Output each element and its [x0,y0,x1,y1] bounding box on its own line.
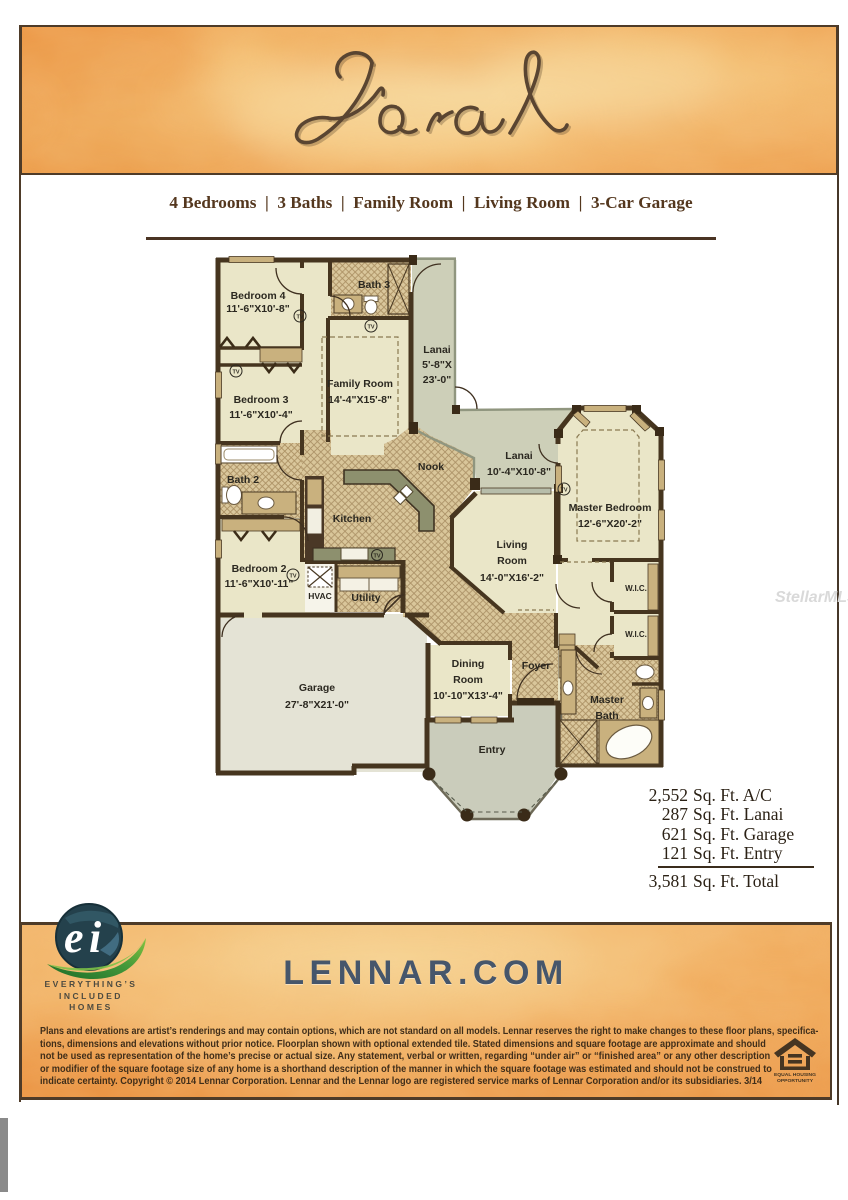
svg-text:TV: TV [296,315,303,321]
svg-text:W.I.C.: W.I.C. [625,584,647,593]
svg-text:Kitchen: Kitchen [333,513,372,525]
svg-text:Master Bedroom: Master Bedroom [569,502,652,514]
svg-text:14'-4"X15'-8": 14'-4"X15'-8" [328,394,392,406]
svg-text:TV: TV [232,370,239,376]
svg-text:10'-4"X10'-8": 10'-4"X10'-8" [487,466,551,478]
svg-text:Bath: Bath [595,710,618,722]
svg-text:Nook: Nook [418,461,444,473]
svg-text:TV: TV [289,574,296,580]
svg-text:Utility: Utility [351,592,380,604]
svg-text:Bedroom 3: Bedroom 3 [234,394,289,406]
svg-text:10'-10"X13'-4": 10'-10"X13'-4" [433,690,503,702]
svg-text:Room: Room [497,555,527,567]
svg-text:Master: Master [590,694,624,706]
svg-text:11'-6"X10'-8": 11'-6"X10'-8" [226,303,289,315]
svg-text:Dining: Dining [452,658,485,670]
svg-text:EQUAL HOUSING: EQUAL HOUSING [774,1072,816,1078]
svg-text:11'-6"X10'-4": 11'-6"X10'-4" [229,409,292,421]
svg-text:Bedroom 4: Bedroom 4 [231,290,286,302]
svg-text:OPPORTUNITY: OPPORTUNITY [777,1078,814,1084]
svg-text:23'-0": 23'-0" [423,374,452,386]
svg-text:11'-6"X10'-11": 11'-6"X10'-11" [225,578,294,590]
svg-text:TV: TV [373,554,380,560]
svg-text:Bath 3: Bath 3 [358,279,390,291]
svg-text:Garage: Garage [299,682,335,694]
svg-text:Bedroom 2: Bedroom 2 [232,563,287,575]
svg-text:Living: Living [497,539,528,551]
svg-text:Bath 2: Bath 2 [227,474,259,486]
svg-text:Lanai: Lanai [505,450,533,462]
svg-text:e: e [64,913,84,962]
svg-text:Room: Room [453,674,483,686]
svg-text:14'-0"X16'-2": 14'-0"X16'-2" [480,572,544,584]
svg-text:HVAC: HVAC [308,591,331,601]
svg-text:TV: TV [560,488,567,494]
svg-text:Entry: Entry [479,744,506,756]
svg-text:W.I.C.: W.I.C. [625,630,647,639]
svg-text:Lanai: Lanai [423,344,451,356]
svg-text:5'-8"X: 5'-8"X [422,359,452,371]
svg-text:TV: TV [367,325,374,331]
svg-text:27'-8"X21'-0": 27'-8"X21'-0" [285,699,349,711]
svg-text:12'-6"X20'-2": 12'-6"X20'-2" [578,518,642,530]
svg-text:i: i [89,913,102,962]
svg-text:Foyer: Foyer [522,660,551,672]
svg-text:Family Room: Family Room [327,378,393,390]
